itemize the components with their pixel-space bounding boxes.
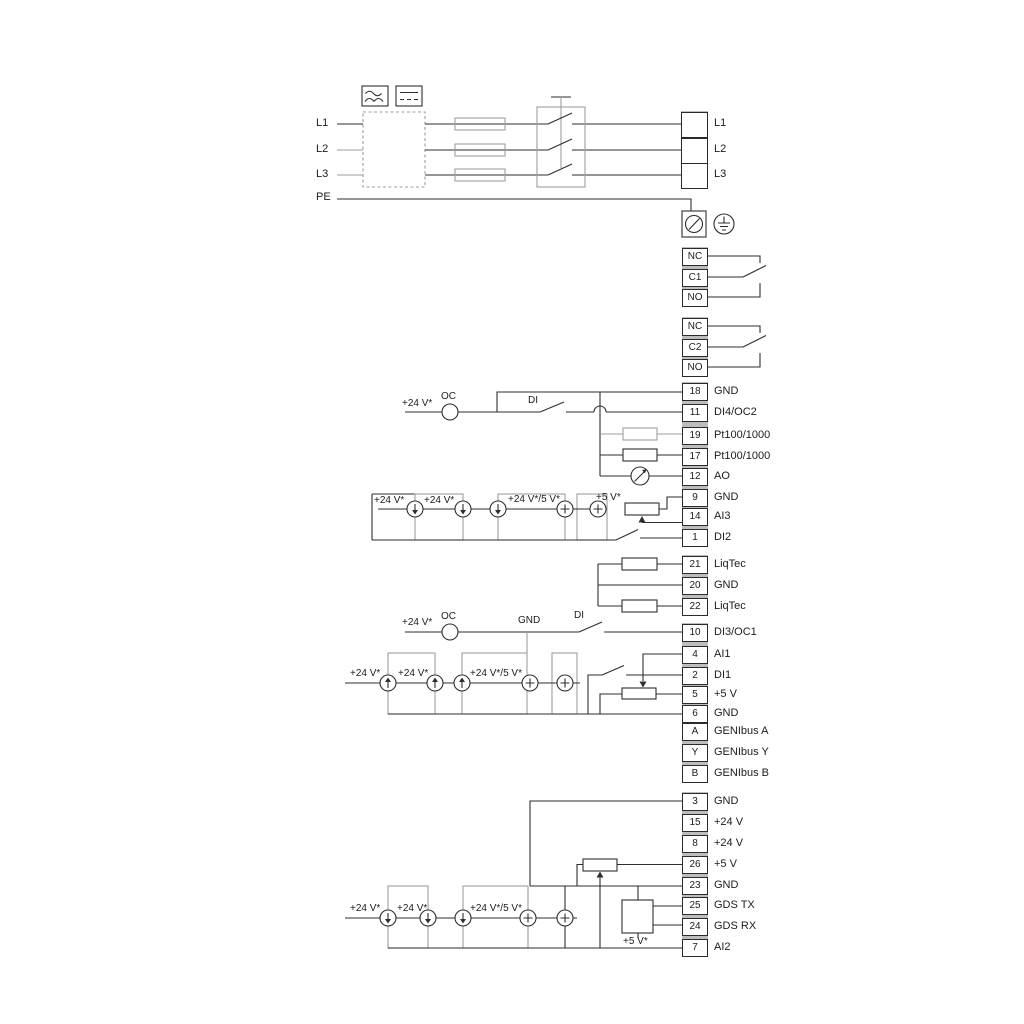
v24-5v-label: +24 V*/5 V* bbox=[470, 903, 522, 914]
di3-switch-blade bbox=[579, 622, 602, 632]
terminal-cell-26: 26 bbox=[682, 856, 708, 874]
terminal-label: GENIbus A bbox=[714, 725, 768, 737]
terminal-cell-10: 10 bbox=[682, 624, 708, 642]
relay1-wiring bbox=[708, 256, 766, 297]
pe-ground-terminal bbox=[682, 211, 734, 237]
terminal-cell bbox=[681, 138, 708, 164]
relay2-wiring bbox=[708, 326, 766, 367]
terminal-cell-8: 8 bbox=[682, 835, 708, 853]
main-switch bbox=[537, 97, 585, 187]
terminal-cell-9: 9 bbox=[682, 489, 708, 507]
terminal-label: GND bbox=[714, 491, 738, 503]
terminal-label: GENIbus Y bbox=[714, 746, 769, 758]
v24-label: +24 V* bbox=[398, 668, 428, 679]
v24-label: +24 V* bbox=[402, 617, 432, 628]
terminal-label: DI1 bbox=[714, 669, 731, 681]
input-label-pe: PE bbox=[316, 191, 336, 203]
liqtec-wiring bbox=[598, 558, 683, 612]
dc-symbol-icon bbox=[396, 86, 422, 106]
terminal-label: GENIbus B bbox=[714, 767, 769, 779]
terminal-cell-1: 1 bbox=[682, 529, 708, 547]
liqtec-sensor-2-icon bbox=[622, 600, 657, 612]
terminal-label: AI1 bbox=[714, 648, 731, 660]
v24-label: +24 V* bbox=[350, 903, 380, 914]
terminal-cell-12: 12 bbox=[682, 468, 708, 486]
terminal-cell-21: 21 bbox=[682, 556, 708, 574]
wiring-diagram-canvas bbox=[0, 0, 1024, 1024]
relay1-nc-cell: NC bbox=[682, 248, 708, 266]
pt100-sensor-2-icon bbox=[623, 449, 657, 461]
terminal-cell-y: Y bbox=[682, 744, 708, 762]
pe-wire bbox=[337, 199, 691, 211]
terminal-cell-23: 23 bbox=[682, 877, 708, 895]
oc-circle-1 bbox=[442, 404, 458, 420]
liqtec-sensor-1-icon bbox=[622, 558, 657, 570]
pt100-sensor-1-icon bbox=[623, 428, 657, 440]
terminal-cell bbox=[681, 163, 708, 189]
terminal-cell-3: 3 bbox=[682, 793, 708, 811]
terminal-cell-a: A bbox=[682, 723, 708, 741]
potentiometer-2-icon bbox=[622, 688, 656, 699]
v24-5v-label: +24 V*/5 V* bbox=[470, 668, 522, 679]
gnd-label: GND bbox=[518, 615, 540, 626]
terminal-cell-b: B bbox=[682, 765, 708, 783]
terminal-cell-2: 2 bbox=[682, 667, 708, 685]
terminal-label: +5 V bbox=[714, 858, 737, 870]
di4-switch-blade bbox=[540, 402, 564, 412]
relay2-contact-blade bbox=[743, 336, 766, 348]
sensor-option-row-2 bbox=[345, 653, 683, 714]
di2-switch-blade bbox=[616, 530, 638, 541]
relay1-no-cell: NO bbox=[682, 289, 708, 307]
v24-5v-label: +24 V*/5 V* bbox=[508, 494, 560, 505]
potentiometer-1-icon bbox=[625, 503, 659, 515]
terminal-label: DI2 bbox=[714, 531, 731, 543]
input-label-l3: L3 bbox=[316, 168, 336, 180]
terminal-cell bbox=[681, 112, 708, 138]
input-label-l1: L1 bbox=[316, 117, 336, 129]
terminal-label: L2 bbox=[714, 143, 726, 155]
input-label-l2: L2 bbox=[316, 143, 336, 155]
terminal-label: DI3/OC1 bbox=[714, 626, 757, 638]
terminal-cell-20: 20 bbox=[682, 577, 708, 595]
terminal-cell-14: 14 bbox=[682, 508, 708, 526]
terminal-cell-11: 11 bbox=[682, 404, 708, 422]
io2-wiring bbox=[405, 622, 683, 653]
terminal-label: +24 V bbox=[714, 837, 743, 849]
oc-label: OC bbox=[441, 611, 456, 622]
terminal-cell-7: 7 bbox=[682, 939, 708, 957]
emc-filter-box bbox=[362, 86, 425, 187]
terminal-label: GDS TX bbox=[714, 899, 755, 911]
terminal-label: +5 V bbox=[714, 688, 737, 700]
terminal-label: LiqTec bbox=[714, 558, 746, 570]
relay1-contact-blade bbox=[743, 266, 766, 278]
io3-wiring bbox=[345, 801, 683, 948]
terminal-cell-24: 24 bbox=[682, 918, 708, 936]
terminal-cell-18: 18 bbox=[682, 383, 708, 401]
terminal-label: GND bbox=[714, 795, 738, 807]
terminal-cell-15: 15 bbox=[682, 814, 708, 832]
terminal-cell-17: 17 bbox=[682, 448, 708, 466]
mains-input-wires bbox=[337, 124, 691, 211]
terminal-label: LiqTec bbox=[714, 600, 746, 612]
terminal-label: Pt100/1000 bbox=[714, 450, 770, 462]
oc-label: OC bbox=[441, 391, 456, 402]
di-label: DI bbox=[528, 395, 538, 406]
v24-label: +24 V* bbox=[397, 903, 427, 914]
relay2-c-cell: C2 bbox=[682, 339, 708, 357]
v24-label: +24 V* bbox=[350, 668, 380, 679]
relay1-c-cell: C1 bbox=[682, 269, 708, 287]
v24-label: +24 V* bbox=[374, 495, 404, 506]
terminal-label: GND bbox=[714, 707, 738, 719]
terminal-label: GND bbox=[714, 385, 738, 397]
terminal-cell-5: 5 bbox=[682, 686, 708, 704]
potentiometer-3-icon bbox=[583, 859, 617, 871]
ac-symbol-icon bbox=[362, 86, 388, 106]
io1-wiring bbox=[405, 392, 683, 485]
di-label: DI bbox=[574, 610, 584, 621]
phase-wires bbox=[425, 124, 681, 175]
v24-label: +24 V* bbox=[402, 398, 432, 409]
v24-label: +24 V* bbox=[424, 495, 454, 506]
terminal-cell-22: 22 bbox=[682, 598, 708, 616]
terminal-label: +24 V bbox=[714, 816, 743, 828]
gds-module-box bbox=[622, 900, 653, 933]
di1-switch-blade bbox=[602, 666, 624, 676]
terminal-cell-6: 6 bbox=[682, 705, 708, 723]
terminal-label: GDS RX bbox=[714, 920, 756, 932]
oc-circle-2 bbox=[442, 624, 458, 640]
terminal-cell-4: 4 bbox=[682, 646, 708, 664]
terminal-label: GND bbox=[714, 579, 738, 591]
relay2-nc-cell: NC bbox=[682, 318, 708, 336]
wiring-diagram-page: L1 L2 L3 PE L1 L2 L3 NC C1 NO NC C2 NO 1… bbox=[0, 0, 1024, 1024]
v5-label: +5 V* bbox=[623, 936, 648, 947]
terminal-label: Pt100/1000 bbox=[714, 429, 770, 441]
terminal-cell-19: 19 bbox=[682, 427, 708, 445]
terminal-label: AI3 bbox=[714, 510, 731, 522]
relay2-no-cell: NO bbox=[682, 359, 708, 377]
v5-label: +5 V* bbox=[596, 492, 621, 503]
terminal-label: L3 bbox=[714, 168, 726, 180]
terminal-label: GND bbox=[714, 879, 738, 891]
terminal-label: L1 bbox=[714, 117, 726, 129]
terminal-cell-25: 25 bbox=[682, 897, 708, 915]
terminal-label: AI2 bbox=[714, 941, 731, 953]
terminal-label: AO bbox=[714, 470, 730, 482]
terminal-label: DI4/OC2 bbox=[714, 406, 757, 418]
